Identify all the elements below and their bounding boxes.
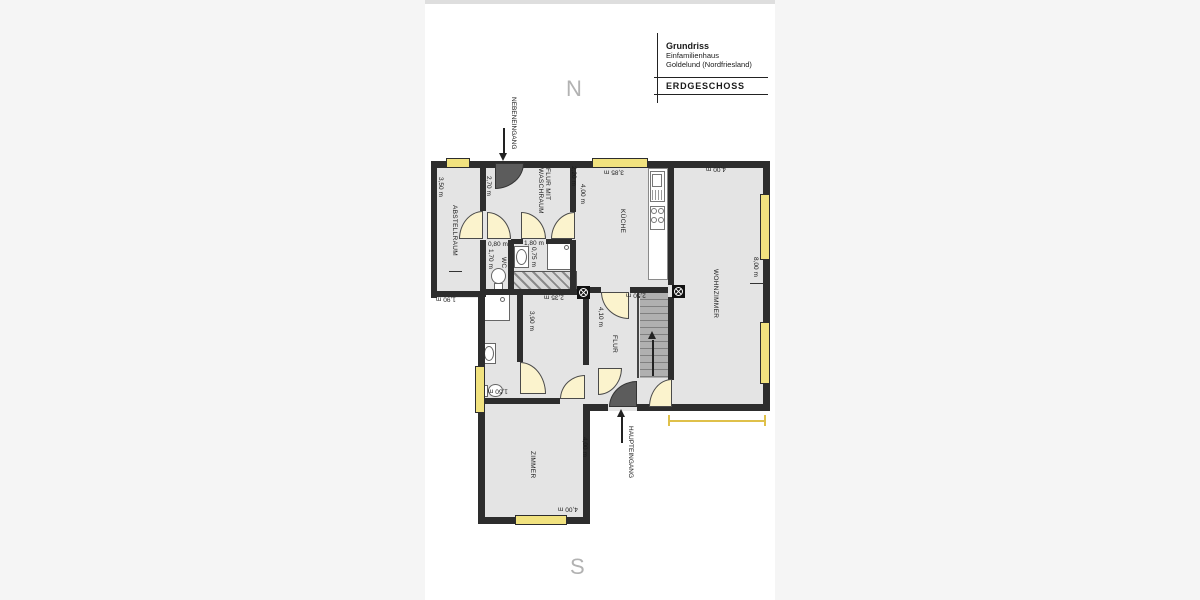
room-label-hallway: FLUR: [611, 335, 618, 353]
toilet-icon: [491, 268, 506, 284]
wall-midroom-hall: [583, 292, 589, 365]
room-label-kitchen: KÜCHE: [619, 209, 626, 233]
stove-burner: [651, 208, 657, 214]
window-room: [515, 515, 567, 525]
title-block-vline: [657, 33, 658, 103]
kitchen-sink-drainer: [652, 190, 663, 200]
wall-mid-horizontal: [480, 289, 590, 295]
dim-wc-width: 0,80 m: [488, 241, 508, 248]
chimney-icon: [577, 286, 590, 299]
wall-hall-south-a: [511, 239, 523, 244]
dim-kitchen-left: 4,00 m: [579, 184, 586, 204]
dim-living-right: 8,00 m: [752, 257, 759, 277]
dim-wc-height: 1,70 m: [487, 249, 494, 269]
dim-midroom-height: 3,90 m: [528, 311, 535, 331]
dim-room-right: 4,00 m: [581, 437, 588, 457]
wall-room-right: [583, 404, 590, 524]
shower-drain: [564, 245, 569, 250]
main-entrance-label: HAUPTEINGANG: [627, 426, 634, 478]
room-label-hall-laundry: FLUR MITWASCHRAUM: [536, 168, 551, 214]
stove-burner: [658, 217, 664, 223]
window-living-lower: [760, 322, 770, 384]
kitchen-sink-basin: [652, 174, 662, 187]
dim-storage-bottom: 1,90 m: [436, 295, 456, 302]
chimney-icon: [672, 285, 685, 298]
dim-tick: [750, 283, 764, 284]
hatched-area: [512, 271, 577, 291]
dim-bath-door: 1,50 m: [488, 387, 508, 394]
title-block-hline: [654, 94, 768, 95]
stair-direction-arrow-head: [648, 331, 656, 339]
room-label-room: ZIMMER: [529, 451, 536, 478]
wall-kitchen-living: [668, 161, 674, 285]
stair-direction-arrow-line: [652, 340, 654, 376]
floor-plan-page: ABSTELLRAUM FLUR MITWASCHRAUM WC KÜCHE W…: [0, 0, 1200, 600]
wall-wc-washroom: [508, 240, 514, 292]
dim-living-top: 4,00 m: [706, 165, 726, 172]
main-entrance-arrow-line: [621, 417, 623, 443]
hall-laundry-line1: FLUR MIT: [544, 168, 551, 200]
wall-kitchen-hall-a: [590, 287, 601, 293]
stove-burner: [658, 208, 664, 214]
title-block-hline: [654, 77, 768, 78]
window-kitchen: [592, 158, 648, 168]
room-label-living: WOHNZIMMER: [712, 269, 719, 318]
wall-room-top: [478, 398, 560, 404]
window-storage: [446, 158, 470, 168]
terrace-dimension-end: [764, 415, 766, 426]
hall-laundry-line2: WASCHRAUM: [537, 168, 544, 214]
side-entrance-label: NEBENEINGANG: [510, 97, 517, 149]
dim-storage-height: 3,50 m: [437, 177, 444, 197]
plan-title: Grundriss: [666, 41, 709, 51]
dim-washroom-height: 0,75 m: [530, 247, 537, 267]
window-bath: [475, 366, 485, 413]
washbasin-bowl: [484, 346, 494, 361]
terrace-dimension-end: [668, 415, 670, 426]
wall-stair-living: [668, 297, 674, 380]
dim-tick: [449, 271, 462, 272]
dim-stairhall-top: 2,50 m: [626, 291, 646, 298]
dim-midroom-width: 2,35 m: [544, 293, 564, 300]
side-entrance-arrow-line: [503, 128, 505, 154]
window-living-upper: [760, 194, 770, 260]
wall-hall-kitchen-b: [570, 240, 576, 292]
stove-burner: [651, 217, 657, 223]
compass-north: N: [566, 76, 582, 101]
compass-south: S: [570, 554, 585, 579]
shower-drain: [500, 297, 505, 302]
wall-bath-midroom: [517, 292, 523, 362]
terrace-dimension-line: [668, 420, 766, 422]
dim-hall-right: 2,20 m: [570, 166, 577, 186]
washbasin-bowl: [516, 249, 527, 265]
floor-label: ERDGESCHOSS: [666, 81, 745, 91]
main-entrance-arrow-icon: [617, 409, 625, 417]
sheet-top-border: [425, 0, 775, 4]
dim-kitchen-top: 3,85 m: [604, 168, 624, 175]
plan-subtitle-location: Goldelund (Nordfriesland): [666, 61, 752, 70]
room-label-storage: ABSTELLRAUM: [451, 205, 458, 256]
room-label-wc: WC: [500, 257, 507, 268]
wall-hall-south-b: [546, 239, 572, 244]
stair-left-edge: [637, 293, 639, 378]
dim-room-bottom: 4,00 m: [558, 505, 578, 512]
dim-washroom-width: 1,80 m: [524, 240, 544, 247]
dim-stairhall-height: 4,10 m: [597, 307, 604, 327]
side-entrance-arrow-icon: [499, 153, 507, 161]
shower-icon: [483, 294, 510, 321]
dim-hall-left: 2,70 m: [485, 176, 492, 196]
